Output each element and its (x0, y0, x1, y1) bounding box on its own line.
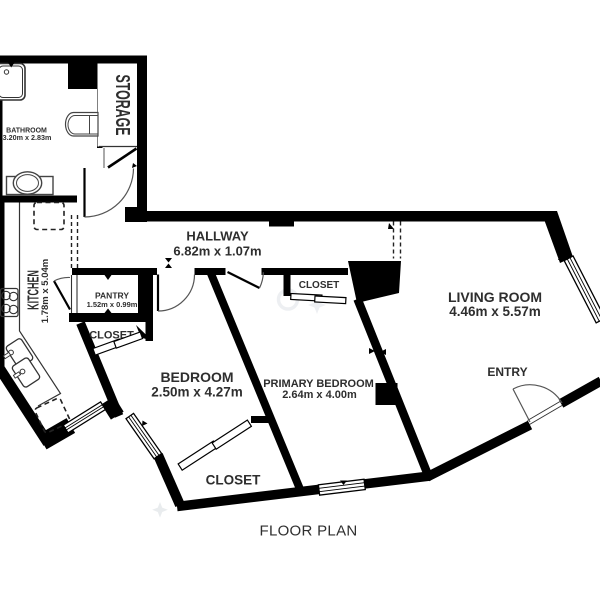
svg-text:CLOSET: CLOSET (206, 473, 262, 488)
svg-text:LIVING ROOM: LIVING ROOM (448, 289, 542, 305)
svg-text:BEDROOM: BEDROOM (160, 369, 233, 385)
svg-text:STORAGE: STORAGE (111, 74, 134, 135)
svg-text:FLOOR PLAN: FLOOR PLAN (259, 523, 357, 540)
svg-text:3.20m x 2.83m: 3.20m x 2.83m (3, 133, 52, 142)
svg-text:CLOSET: CLOSET (299, 280, 340, 291)
svg-text:1.78m x 5.04m: 1.78m x 5.04m (40, 259, 51, 323)
svg-text:ENTRY: ENTRY (487, 365, 527, 379)
svg-text:PANTRY: PANTRY (95, 291, 129, 301)
svg-text:2.50m x 4.27m: 2.50m x 4.27m (151, 385, 243, 400)
svg-text:4.46m x 5.57m: 4.46m x 5.57m (449, 304, 541, 319)
svg-text:6.82m x 1.07m: 6.82m x 1.07m (173, 244, 261, 259)
svg-text:1.52m x 0.99m: 1.52m x 0.99m (87, 300, 138, 309)
svg-text:2.64m x 4.00m: 2.64m x 4.00m (282, 389, 357, 401)
svg-text:HALLWAY: HALLWAY (186, 229, 249, 244)
